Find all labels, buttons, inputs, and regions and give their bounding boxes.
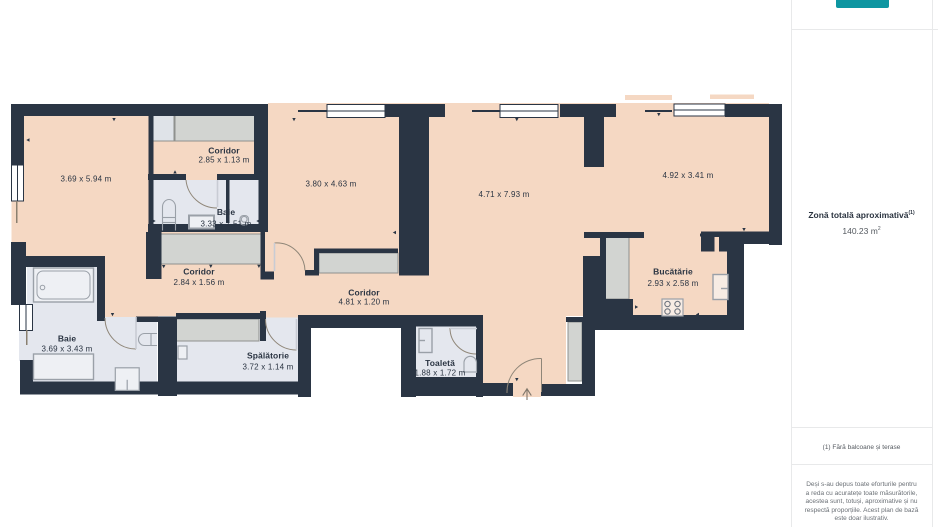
svg-text:Coridor: Coridor — [348, 288, 380, 298]
svg-text:3.72 x 1.14 m: 3.72 x 1.14 m — [242, 363, 293, 372]
svg-text:Baie: Baie — [217, 207, 236, 217]
svg-text:Baie: Baie — [58, 334, 77, 344]
svg-text:Bucătărie: Bucătărie — [653, 267, 693, 277]
svg-text:2.93 x 2.58 m: 2.93 x 2.58 m — [647, 279, 698, 288]
svg-text:4.71 x 7.93 m: 4.71 x 7.93 m — [478, 190, 529, 199]
svg-text:Toaletă: Toaletă — [425, 358, 455, 368]
svg-text:3.69 x 5.94 m: 3.69 x 5.94 m — [60, 175, 111, 184]
svg-text:3.69 x 3.43 m: 3.69 x 3.43 m — [41, 345, 92, 354]
svg-text:Coridor: Coridor — [208, 146, 240, 156]
svg-text:Coridor: Coridor — [183, 267, 215, 277]
svg-text:1.88 x 1.72 m: 1.88 x 1.72 m — [414, 369, 465, 378]
svg-text:2.85 x 1.13 m: 2.85 x 1.13 m — [198, 156, 249, 165]
svg-text:3.33 x 1.51 m: 3.33 x 1.51 m — [200, 220, 251, 229]
svg-text:4.92 x 3.41 m: 4.92 x 3.41 m — [662, 171, 713, 180]
svg-text:Spălătorie: Spălătorie — [247, 351, 289, 361]
svg-text:3.80 x 4.63 m: 3.80 x 4.63 m — [305, 180, 356, 189]
svg-text:2.84 x 1.56 m: 2.84 x 1.56 m — [173, 278, 224, 287]
svg-text:4.81 x 1.20 m: 4.81 x 1.20 m — [338, 298, 389, 307]
